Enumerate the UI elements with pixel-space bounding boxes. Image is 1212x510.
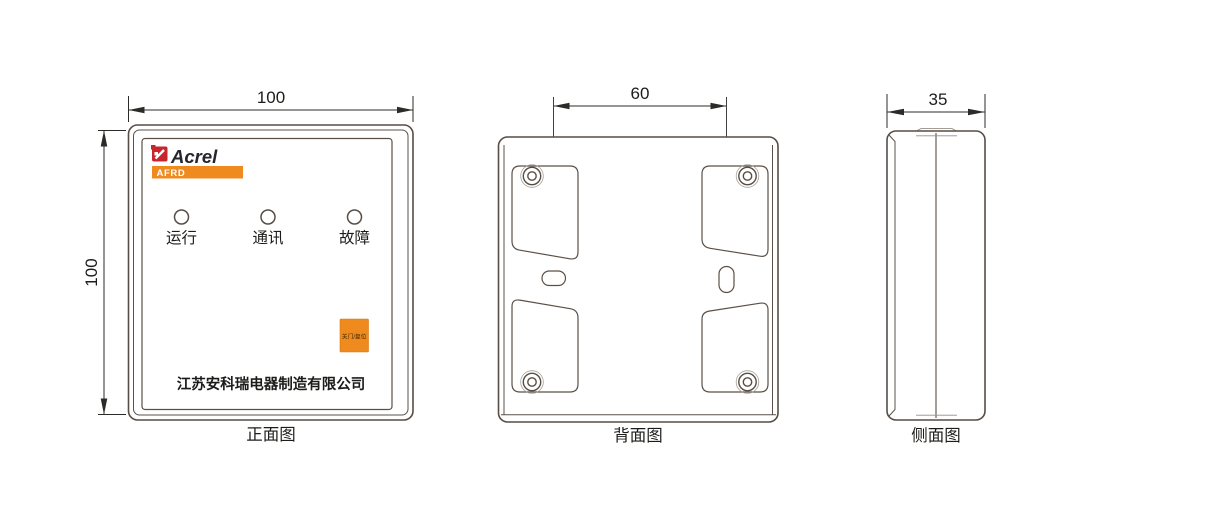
close-reset-button: 关门/复位	[340, 319, 369, 352]
button-label: 关门/复位	[342, 333, 367, 341]
fault-led-label: 故障	[339, 229, 370, 247]
comm-led-label: 通讯	[252, 229, 283, 247]
arrowhead-left-icon	[887, 109, 904, 116]
run-led-label: 运行	[166, 229, 197, 247]
front-width-dimension: 100	[129, 88, 414, 122]
device-dimension-drawing: 100 100 Acrel AFRD	[0, 0, 1212, 510]
logo-window-icon	[155, 152, 159, 156]
arrowhead-right-icon	[968, 109, 985, 116]
arrowhead-down-icon	[101, 399, 108, 415]
brand-name: Acrel	[170, 146, 218, 167]
front-width-value: 100	[257, 88, 285, 107]
front-height-value: 100	[82, 258, 101, 286]
dimension-drawing-page: 100 100 Acrel AFRD	[0, 0, 1212, 510]
side-view-caption: 侧面图	[911, 426, 961, 445]
arrowhead-right-icon	[711, 103, 727, 110]
back-view: 60	[499, 84, 779, 445]
arrowhead-up-icon	[101, 131, 108, 147]
side-view: 35 侧面图	[887, 90, 985, 445]
company-name: 江苏安科瑞电器制造有限公司	[177, 375, 366, 393]
back-view-caption: 背面图	[613, 426, 663, 445]
arrowhead-right-icon	[397, 107, 413, 114]
arrowhead-left-icon	[129, 107, 145, 114]
front-height-dimension: 100	[82, 131, 126, 415]
model-name: AFRD	[157, 168, 186, 179]
depth-value: 35	[929, 90, 948, 109]
arrowhead-left-icon	[554, 103, 570, 110]
depth-dimension: 35	[887, 90, 985, 128]
front-view-caption: 正面图	[246, 426, 296, 444]
front-view: 100 100 Acrel AFRD	[82, 88, 413, 444]
hole-spacing-value: 60	[631, 84, 650, 103]
